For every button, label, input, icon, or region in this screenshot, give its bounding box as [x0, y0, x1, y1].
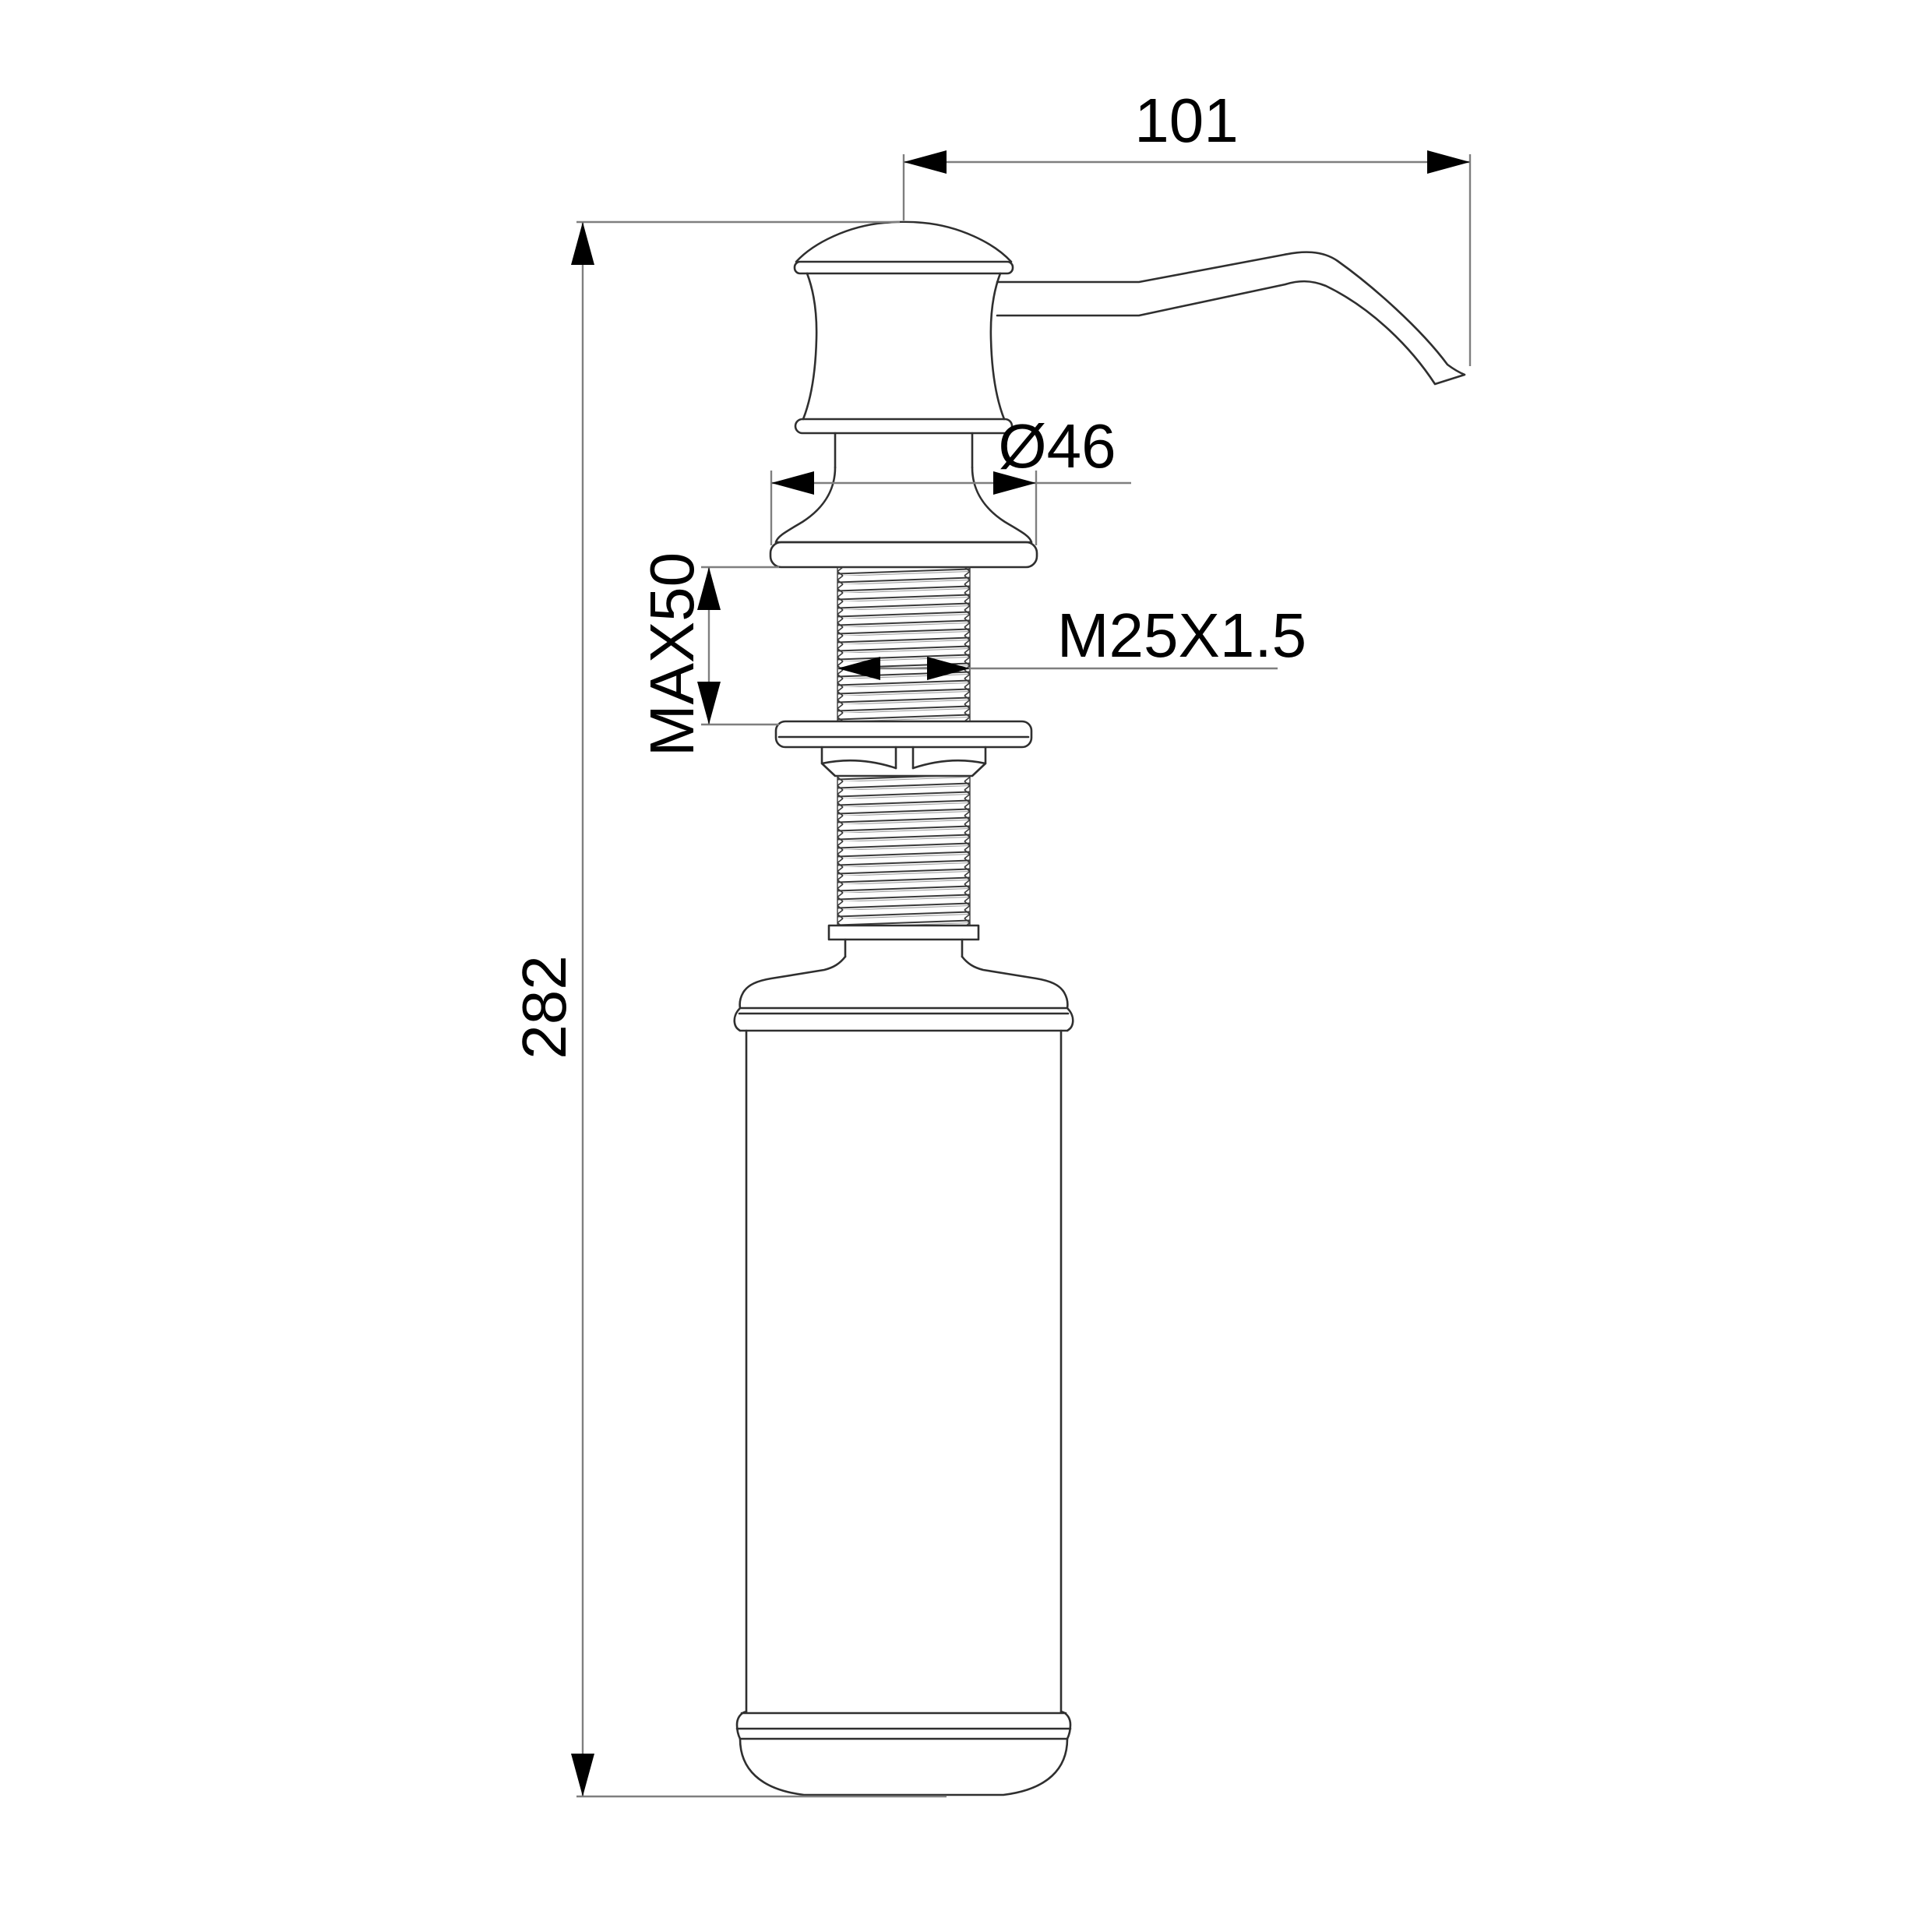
spout-outline — [997, 252, 1465, 384]
arrow-up-icon — [571, 222, 594, 265]
dim-282-label: 282 — [509, 955, 579, 1059]
bottle-shoulder-rings — [735, 1008, 1073, 1031]
bottle-bottom — [740, 1739, 1067, 1795]
pump-head-brim — [795, 262, 1013, 273]
lower-thread-body — [837, 776, 970, 925]
bottle — [735, 957, 1073, 1795]
arrow-right-icon — [1427, 150, 1470, 174]
arrow-down-icon — [571, 1754, 594, 1796]
arrow-left-icon — [904, 150, 947, 174]
dimension-max-deck-thickness: MAX50 — [637, 552, 779, 756]
bottle-shoulder-right — [962, 957, 1067, 1008]
dim-282-extension-lines — [576, 222, 947, 1796]
pump-head-flange — [795, 419, 1012, 433]
upper-thread — [837, 567, 970, 721]
thread-end-collar — [829, 925, 978, 940]
dimension-total-height: 282 — [509, 222, 947, 1796]
pump-head-waist-left-edge — [803, 273, 816, 419]
pump-head — [770, 222, 1037, 567]
washer — [776, 721, 1031, 747]
dim-m25-label: M25X1.5 — [1057, 601, 1306, 670]
dimension-spout-reach: 101 — [904, 86, 1470, 366]
dim-46-label: Ø46 — [998, 411, 1116, 481]
dimension-flange-diameter: Ø46 — [771, 411, 1131, 545]
hex-nut — [822, 747, 985, 776]
dim-101-label: 101 — [1134, 86, 1238, 155]
pump-head-neck — [835, 433, 972, 467]
lower-thread — [829, 776, 978, 957]
pump-head-bell-base — [770, 542, 1037, 567]
washer-plate — [776, 721, 1031, 747]
pump-head-waist-right-edge — [991, 273, 1004, 419]
spout — [997, 252, 1465, 384]
bottle-neck-stub — [845, 940, 962, 957]
dim-101-extension-lines — [904, 154, 1470, 366]
arrow-left-icon — [771, 471, 814, 495]
hex-nut-face-lines — [896, 747, 913, 768]
pump-head-dome — [796, 222, 1011, 262]
bottle-body-walls — [746, 1031, 1061, 1712]
bottle-shoulder-left — [740, 957, 845, 1008]
hex-nut-chamfer — [822, 760, 985, 768]
dim-max50-label: MAX50 — [637, 552, 707, 756]
bottle-bottom-band — [737, 1712, 1070, 1739]
technical-drawing-canvas: 101 Ø46 MAX50 M25X1.5 282 — [0, 0, 1932, 1932]
upper-thread-body — [837, 567, 970, 721]
